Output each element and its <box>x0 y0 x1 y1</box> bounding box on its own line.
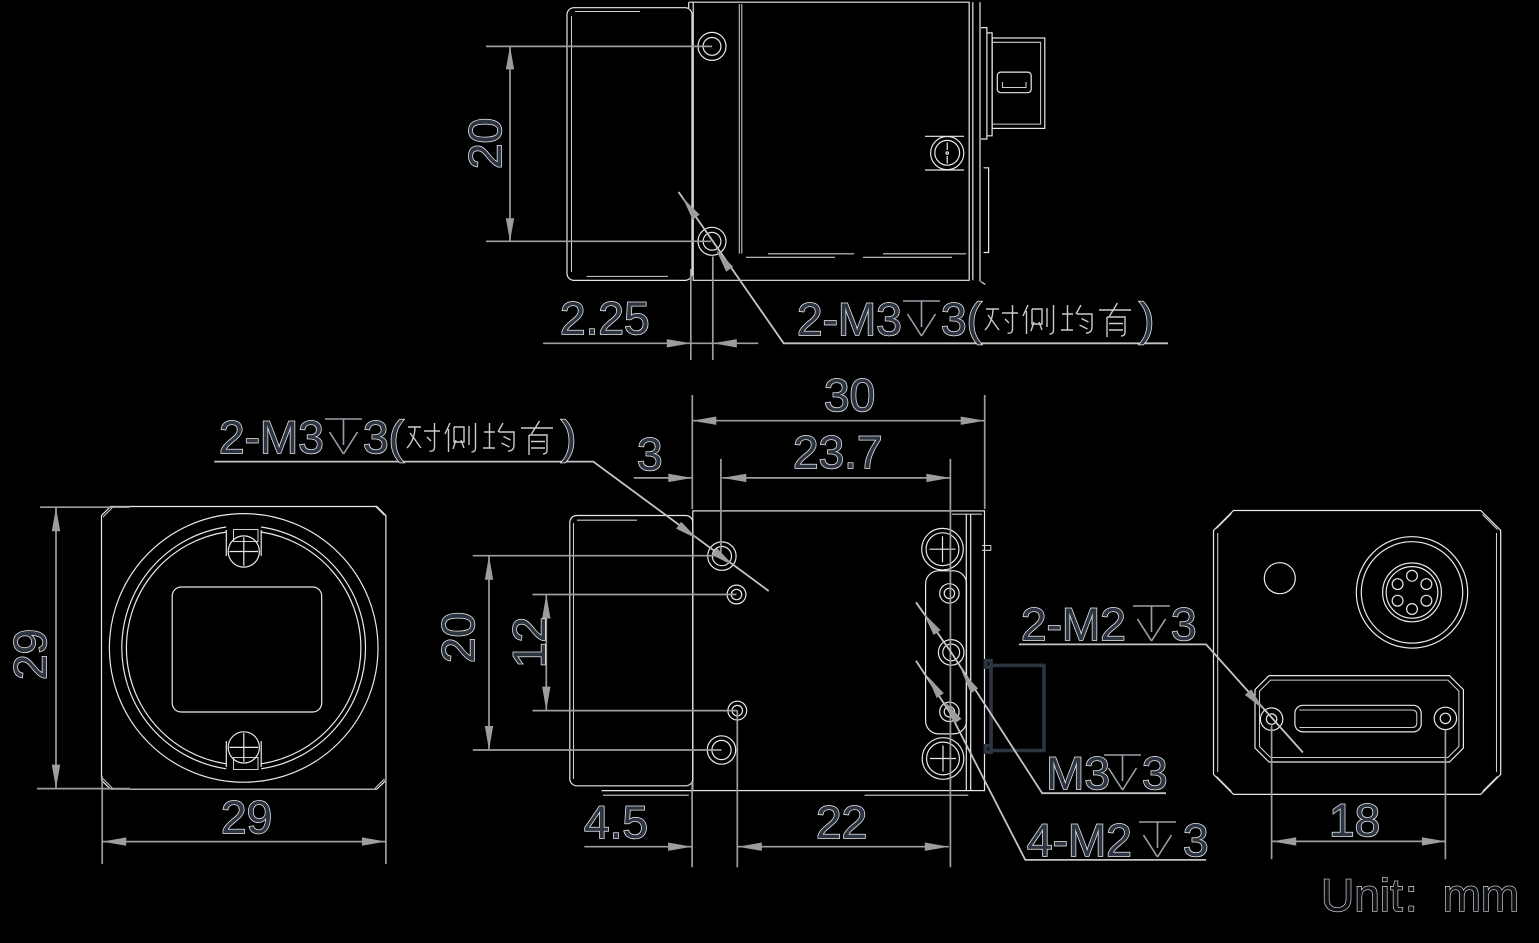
svg-text:20: 20 <box>432 612 484 663</box>
svg-text:3: 3 <box>1171 598 1197 650</box>
svg-text:22: 22 <box>816 796 867 848</box>
svg-text:29: 29 <box>221 791 272 843</box>
svg-text:3(: 3( <box>941 293 983 345</box>
svg-text:4.5: 4.5 <box>584 796 648 848</box>
svg-text:): ) <box>1139 293 1154 345</box>
svg-text:): ) <box>561 411 576 463</box>
svg-text:20: 20 <box>459 118 511 169</box>
svg-text:29: 29 <box>4 629 56 680</box>
svg-text:M3: M3 <box>1046 747 1110 799</box>
svg-text:4-M2: 4-M2 <box>1027 814 1132 866</box>
svg-text:2.25: 2.25 <box>560 292 650 344</box>
svg-text:30: 30 <box>824 369 875 421</box>
svg-text:2-M3: 2-M3 <box>797 293 902 345</box>
svg-text:3: 3 <box>1183 814 1209 866</box>
svg-text:3: 3 <box>1142 747 1168 799</box>
svg-text:12: 12 <box>503 617 555 668</box>
svg-text:23.7: 23.7 <box>793 426 883 478</box>
svg-text:2-M3: 2-M3 <box>219 411 324 463</box>
svg-text:2-M2: 2-M2 <box>1021 598 1126 650</box>
svg-text:18: 18 <box>1329 794 1380 846</box>
svg-text:3(: 3( <box>363 411 405 463</box>
svg-text:3: 3 <box>637 428 663 480</box>
